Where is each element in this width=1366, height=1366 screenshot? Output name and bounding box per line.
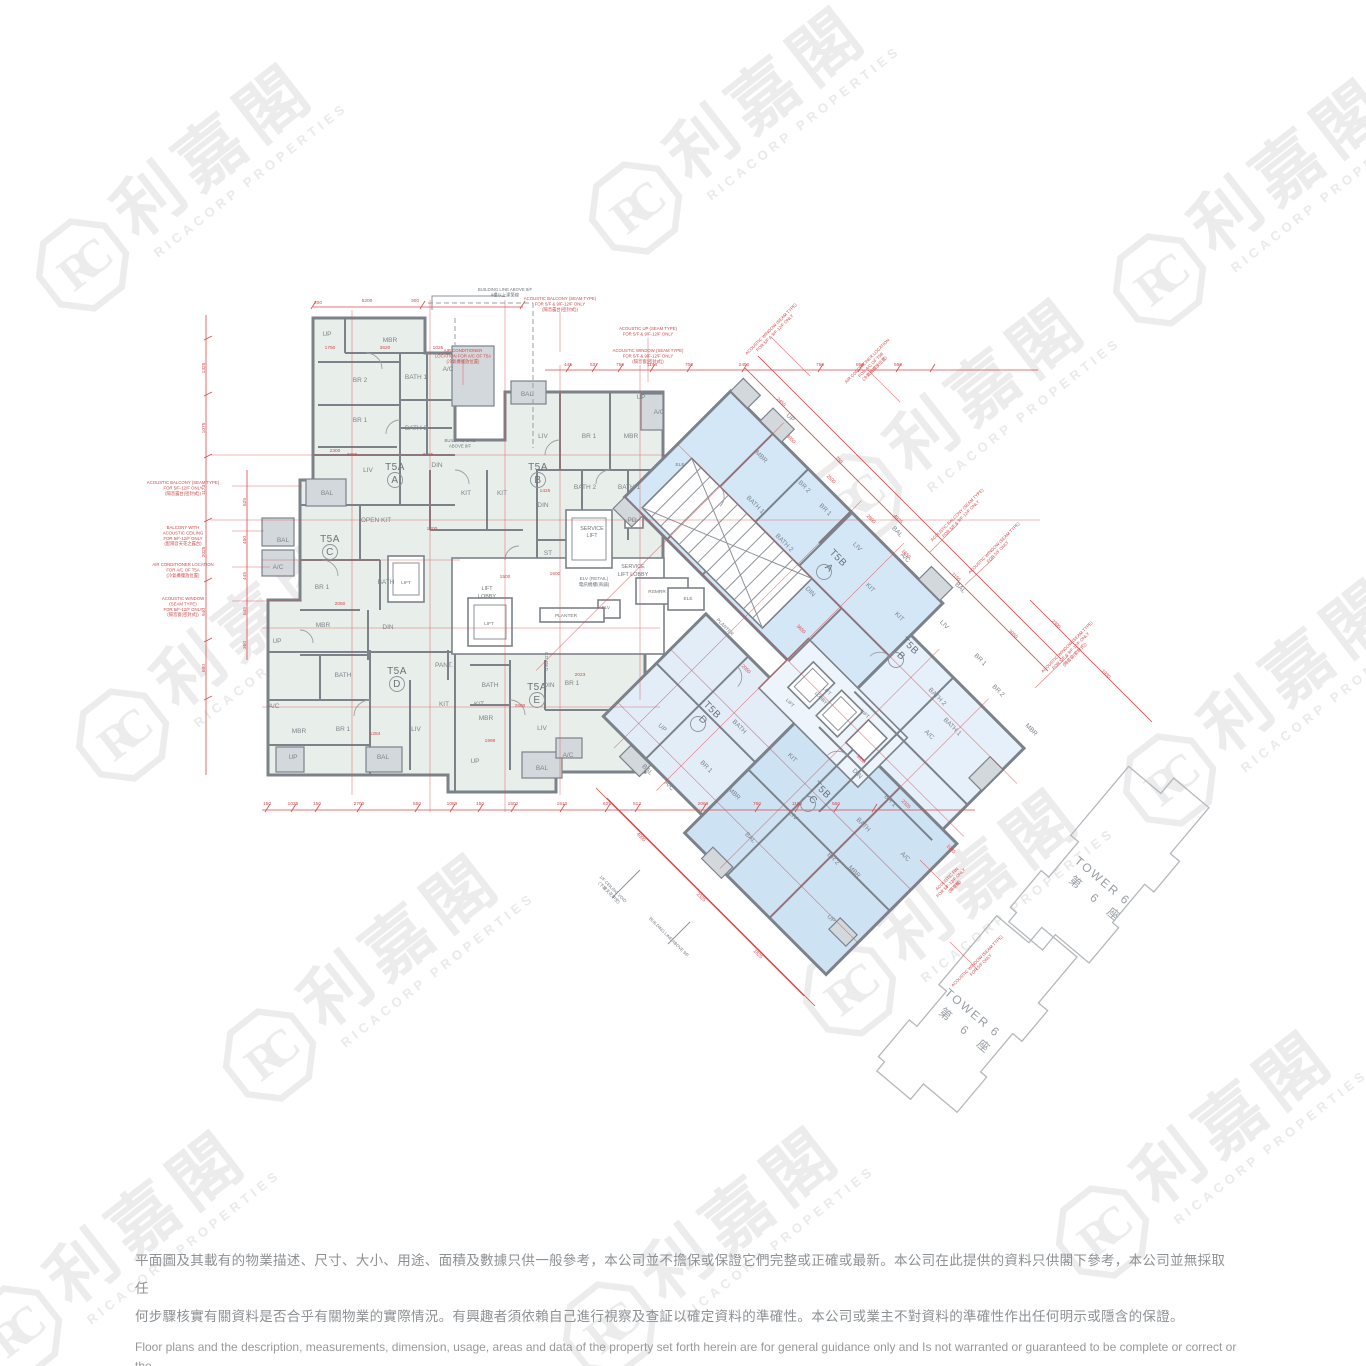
room-label: A/C — [273, 564, 284, 571]
dimension-label: 1284 — [370, 731, 381, 737]
dimension-label: 300 — [411, 298, 419, 304]
dimension-label: 360 — [242, 641, 248, 649]
dimension-label: 750 — [816, 362, 824, 368]
annotation-line: FOR 5/F-12/F ONLY — [163, 485, 202, 490]
annotation-line: BUILDING LINE — [444, 438, 475, 443]
room-label: KIT — [497, 490, 507, 497]
disclaimer-zh-line2: 何步驟核實有關資料是否合乎有關物業的實際情況。有興趣者須依賴自己進行視察及查証以… — [135, 1303, 1237, 1331]
dimension-label: 750 — [753, 801, 761, 807]
dimension-label: 2300 — [330, 448, 341, 454]
dimension-label: 1089 — [447, 801, 458, 807]
room-label: BR 1 — [336, 726, 351, 733]
dimension-label: 550 — [894, 362, 902, 368]
room-label: BR 1 — [582, 433, 597, 440]
dimension-label: 445 — [242, 572, 248, 580]
annotation-line: ACOUSTIC WINDOW (SEAM TYPE) — [967, 521, 1021, 575]
dimension-label: 2700 — [354, 801, 365, 807]
unit-label: D — [393, 679, 401, 690]
dimension-label: 1930 — [1100, 668, 1112, 680]
room-label: DIN — [431, 462, 443, 469]
annotation-line: BUILDING LINE ABOVE 9/F — [478, 287, 533, 292]
room-label: UP — [272, 638, 281, 645]
room-label: ST — [544, 550, 552, 557]
annotation-line: FOR 5/F-12/F ONLY — [163, 607, 202, 612]
annotation-line: (SEAM TYPE) — [169, 601, 197, 606]
floor-plan-drawing: TOWER 6 第 6 座 TOWER 6 第 6 座 — [0, 0, 1366, 1366]
dimension-label: 2800 — [865, 513, 877, 525]
dimension-label: 680 — [201, 664, 207, 672]
dimension-label: 2500 — [825, 473, 837, 485]
core-label: LIFT — [586, 533, 598, 539]
dimension-label: 3025 — [423, 452, 434, 458]
disclaimer-zh-line1: 平面圖及其載有的物業描述、尺寸、大小、用途、面積及數據只供一般參考，本公司並不擔… — [135, 1247, 1237, 1303]
room-label: BATH — [378, 579, 395, 586]
room-label: MBR — [316, 622, 331, 629]
room-label: KIT — [439, 701, 449, 708]
room-label: BATH — [335, 672, 352, 679]
dimension-label: 550 — [413, 801, 421, 807]
dimension-label: 200 — [314, 300, 322, 306]
annotation-line: LOCATION FOR A/C OF T5A — [435, 353, 491, 358]
dimension-label: 150 — [476, 801, 484, 807]
dimension-label: 150 — [263, 801, 271, 807]
room-label: DIN — [382, 624, 394, 631]
dimension-label: 513 — [633, 801, 641, 807]
dimension-label: 1325 — [201, 362, 207, 373]
dimension-label: 700 — [685, 362, 693, 368]
core-label: 電訊機樓(商舖) — [579, 581, 610, 588]
annotation-line: FOR 5/F & 9/F-12/F ONLY — [941, 499, 980, 538]
dimension-label: 550 — [832, 801, 840, 807]
room-label: LIV — [938, 619, 950, 631]
room-label: OPEN KIT — [361, 517, 391, 524]
annotation-line: ABOVE 9/F — [449, 443, 472, 448]
core-label: RSMRR — [648, 589, 666, 595]
dimension-label: 3620 — [380, 345, 391, 351]
dimension-label: 750 — [616, 362, 624, 368]
room-label: KIT — [461, 490, 471, 497]
annotation-line: AIR CONDITIONER LOCATION — [152, 562, 213, 567]
annotation-line: (配隔音天花之露台) — [164, 540, 202, 547]
room-label: KIT — [474, 701, 484, 708]
dimension-label: 450 — [242, 536, 248, 544]
core-label: ELE — [683, 596, 692, 602]
dimension-label: 625 — [603, 801, 611, 807]
unit-label: B — [534, 475, 541, 486]
disclaimer-en-line1: Floor plans and the description, measure… — [135, 1338, 1237, 1366]
core-label: SERVICE — [621, 564, 645, 570]
dimension-label: 1425 — [540, 488, 551, 494]
dimension-label: 1510 — [557, 801, 568, 807]
room-label: UP — [288, 754, 297, 761]
annotation-line: FOR 5/F & 9/F-12/F ONLY — [755, 313, 794, 352]
room-label: LIV — [538, 433, 548, 440]
dimension-label: 150 — [313, 801, 321, 807]
dimension-label: 3050 — [1007, 628, 1019, 640]
room-label: DIN — [537, 502, 549, 509]
room-label: BR 2 — [990, 683, 1005, 698]
floorplan-sheet: RC 利嘉閣 RICACORP PROPERTIES RC 利嘉閣 RICACO… — [0, 0, 1366, 1366]
room-label: BAL — [321, 490, 334, 497]
room-label: A/C — [654, 409, 665, 416]
room-label: BAL — [377, 754, 390, 761]
room-label: LIV — [411, 726, 421, 733]
unit-label: T5A — [387, 666, 407, 677]
annotation-line: (隔音露台(密封式)) — [165, 490, 201, 497]
room-label: BAL — [953, 581, 967, 595]
room-label: BAL — [277, 537, 290, 544]
dimension-label: 2025 — [201, 546, 207, 557]
disclaimer: 平面圖及其載有的物業描述、尺寸、大小、用途、面積及數據只供一般參考，本公司並不擔… — [135, 1247, 1237, 1366]
dimension-label: 1600 — [550, 571, 561, 577]
dimension-label: 637 — [590, 362, 598, 368]
unit-label: T5A — [385, 462, 405, 473]
dimension-label: 5200 — [362, 298, 373, 304]
core-label: SERVICE — [580, 526, 604, 532]
room-label: MBR — [479, 715, 494, 722]
unit-label: T5A — [528, 462, 548, 473]
dimension-label: 625 — [242, 498, 248, 506]
room-label: UP — [470, 758, 479, 765]
dimension-label: 645 — [242, 607, 248, 615]
room-label: A/C — [563, 752, 574, 759]
room-label: MBR — [624, 433, 639, 440]
room-label: BATH 1 — [618, 484, 641, 491]
room-label: BR 1 — [972, 652, 987, 667]
annotation-line: FOR A/C OF T5A — [166, 567, 199, 572]
room-label: MBR — [292, 728, 307, 735]
dimension-label: 2069 — [698, 801, 709, 807]
room-label: BR 1 — [353, 417, 368, 424]
annotation-line: ACOUSTIC BALCONY (SEAM TYPE) — [147, 480, 220, 485]
room-label: BATH 1 — [405, 374, 428, 381]
annotation-line: ACOUSTIC BALCONY (SEAM TYPE) — [930, 487, 985, 542]
annotation-line: ACOUSTIC WINDOW (SEAM TYPE) — [744, 302, 798, 356]
core-label: LIFT — [481, 586, 493, 592]
annotation-line: (隔音露台(密封式)) — [542, 306, 578, 313]
dimension-label: 2325 — [695, 891, 707, 903]
core-label: LIFT — [484, 621, 494, 627]
dimension-label: 1025 — [288, 801, 299, 807]
room-label: A/C — [443, 366, 454, 373]
room-label: MBR — [383, 337, 398, 344]
core-label: ELV — [602, 605, 610, 610]
room-label: BATH 2 — [574, 484, 597, 491]
room-label: PD — [627, 517, 636, 524]
annotation-line: 9樓以上建築線 — [491, 291, 520, 298]
dimension-label: 2600 — [515, 703, 526, 709]
unit-label: C — [326, 547, 334, 558]
annotation-line: ACOUSTIC CEILING — [163, 530, 204, 535]
dimension-label: 2050 — [335, 601, 346, 607]
annotation-line: FOR 5/F & 9/F-12/F ONLY — [623, 353, 674, 358]
room-label: MBR — [1023, 722, 1038, 737]
core-label: LIFT — [401, 580, 411, 586]
annotation-line: (冷氣機擺放位置) — [167, 572, 201, 579]
dimension-label: 1075 — [201, 422, 207, 433]
room-label: BAL — [521, 391, 534, 398]
annotation-line: ACOUSTIC BALCONY (SEAM TYPE) — [524, 296, 597, 301]
room-label: BATH — [482, 682, 499, 689]
room-label: LIV — [363, 467, 373, 474]
room-label: BAL — [536, 765, 549, 772]
room-label: BR 1 — [565, 680, 580, 687]
room-label: BATH 2 — [405, 425, 428, 432]
annotation-line: BALCONY WITH — [167, 525, 200, 530]
dimension-label: 1500 — [500, 574, 511, 580]
dimension-label: 750 — [834, 455, 844, 465]
dimension-label: 4000 — [635, 831, 647, 843]
dimension-label: 2450 — [739, 362, 750, 368]
unit-label: E — [533, 695, 540, 706]
dimension-label: 4925 — [892, 513, 904, 525]
unit-label: A — [391, 475, 398, 486]
annotation-line: ACOUSTIC WINDOW (SEAM TYPE) — [613, 348, 684, 353]
annotation-line: FOR 5/F-12/F ONLY — [163, 536, 202, 541]
room-label: PANT. — [435, 662, 453, 669]
dimension-label: 2023 — [575, 672, 586, 678]
annotation-line: BUILDING LINE ABOVE 9/F — [648, 916, 690, 958]
room-label: UP — [322, 331, 331, 338]
annotation-line: (隔音窗(密封式)) — [632, 358, 664, 365]
unit-label: T5A — [320, 534, 340, 545]
annotation-line: FOR 5/F & 9/F-12/F ONLY — [1051, 631, 1090, 670]
dimension-label: 1200 — [427, 526, 438, 532]
dimension-label: 1502 — [508, 801, 519, 807]
room-label: BR 2 — [353, 377, 368, 384]
core-label: LIFT LOBBY — [618, 572, 649, 578]
room-label: BAL — [890, 525, 904, 539]
annotation-line: (隔音窗(密封式)) — [167, 611, 199, 618]
annotation-line: ACOUSTIC UP (SEAM TYPE) — [619, 326, 677, 331]
room-label: UP — [636, 394, 645, 401]
room-label: LIV — [537, 725, 547, 732]
core-label: LOBBY — [478, 594, 496, 600]
dimension-label: 2450 — [775, 396, 787, 408]
dimension-label: 3050 — [785, 433, 797, 445]
room-label: DIN — [543, 682, 555, 689]
annotation-line: FOR 5/F & 9/F-12/F ONLY — [623, 331, 674, 336]
dimension-label: 1825 — [752, 948, 764, 960]
dimension-label: 1999 — [485, 738, 496, 744]
annotation-line: (冷氣機擺放位置) — [447, 358, 481, 365]
annotation-line: FOR 5/F & 9/F-12/F ONLY — [535, 301, 586, 306]
room-label: BR 1 — [315, 584, 330, 591]
dimension-label: 445 — [564, 362, 572, 368]
annotation-line: ACOUSTIC WINDOW — [162, 596, 205, 601]
core-label: ELE — [675, 462, 684, 468]
annotation-line: AIR CONDITIONER — [444, 348, 482, 353]
dimension-label: 1025 — [433, 345, 444, 351]
tower6-outline-upper: TOWER 6 第 6 座 — [1003, 751, 1218, 981]
core-label: C.D.&M.D. — [544, 652, 549, 672]
dimension-label: 1750 — [325, 345, 336, 351]
dimension-label: 2300 — [1050, 618, 1062, 630]
dimension-label: 1184 — [792, 801, 803, 807]
room-label: A/C — [269, 703, 280, 710]
dimension-label: 2000 — [347, 452, 358, 458]
core-label: ELV (RETAIL) — [580, 576, 609, 581]
tower6-outline-lower: TOWER 6 第 6 座 — [871, 900, 1086, 1130]
core-label: PLANTER — [555, 613, 578, 619]
